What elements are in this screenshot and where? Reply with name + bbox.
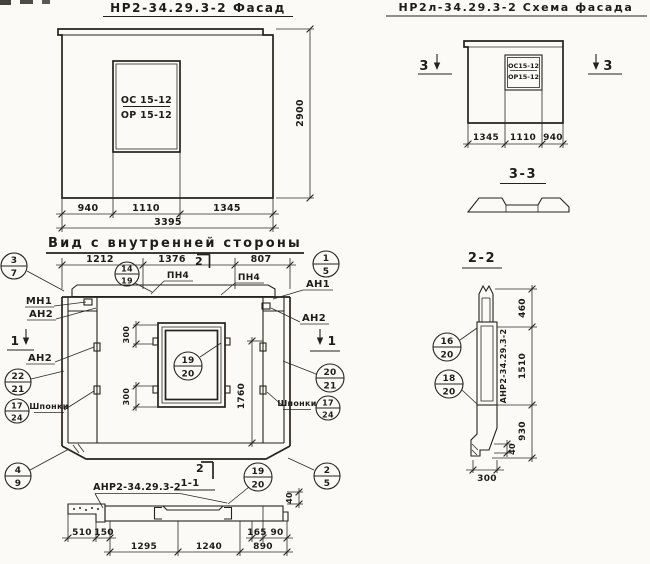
svg-text:20: 20	[440, 351, 453, 361]
label-an2-left-mid: АН2	[26, 347, 94, 364]
dim-300-bottom: 300	[122, 388, 131, 406]
label-an2-right: АН2	[271, 308, 329, 324]
dim-40: 40	[508, 443, 517, 455]
dim-165: 165	[247, 528, 267, 538]
svg-text:20: 20	[181, 370, 194, 380]
svg-text:19: 19	[251, 467, 264, 477]
svg-text:40: 40	[285, 492, 294, 504]
section-3-3-profile	[468, 198, 569, 212]
inner-title: Вид с внутренней стороны	[48, 236, 302, 251]
svg-text:ПН4: ПН4	[167, 271, 189, 281]
dim-1345: 1345	[473, 133, 499, 143]
svg-text:5: 5	[324, 479, 331, 489]
svg-text:2: 2	[324, 466, 331, 476]
svg-text:4: 4	[15, 466, 22, 476]
callout-19-20-bottom: 19 20	[228, 463, 272, 504]
label-pn4-right: ПН4	[221, 273, 264, 295]
facade-window-label-bottom: ОР 15-12	[121, 110, 172, 121]
schema-view: НР2л-34.29.3-2 Схема фасада ОС15-12 ОР15…	[386, 1, 647, 148]
keys-label-left: Шпонки	[29, 402, 68, 411]
dim-1240: 1240	[196, 542, 222, 552]
svg-text:2: 2	[196, 462, 204, 475]
dim-1295: 1295	[131, 542, 157, 552]
schema-window-label-top: ОС15-12	[508, 62, 539, 70]
section1-marker-left: 1	[7, 329, 34, 350]
section-1-1: 510 150 165 90 1295 1240 890	[62, 504, 293, 556]
dim-510: 510	[72, 528, 92, 538]
section2-cut-marker-bottom: 2	[196, 462, 213, 479]
svg-text:24: 24	[322, 411, 334, 420]
dim-807: 807	[251, 254, 272, 265]
svg-text:19: 19	[121, 277, 133, 286]
svg-text:14: 14	[121, 265, 133, 274]
keys-label-right: Шпонки	[277, 399, 316, 408]
svg-text:20: 20	[251, 481, 264, 491]
section-1-1-title: 1-1	[181, 478, 200, 489]
section-2-2-mark-label: АНР2-34.29.3-2	[499, 329, 508, 404]
callout-19-20-center: 19 20	[174, 343, 221, 380]
schema-window-label-bottom: ОР15-12	[508, 73, 539, 81]
svg-text:21: 21	[323, 382, 336, 392]
dim-940: 940	[78, 203, 99, 214]
dim-1212: 1212	[86, 254, 114, 265]
svg-text:21: 21	[11, 385, 24, 395]
section3-marker-right: 3	[588, 54, 622, 74]
svg-text:МН1: МН1	[26, 296, 52, 307]
dim-930: 930	[518, 421, 528, 441]
callout-22-21: 22 21	[5, 369, 64, 395]
dim-40-bottom: 40	[285, 488, 303, 508]
callout-1-5: 1 5	[313, 251, 339, 277]
svg-text:3: 3	[11, 256, 18, 266]
scan-artifact	[0, 0, 50, 5]
svg-text:24: 24	[11, 414, 23, 423]
dim-1760: 1760	[237, 383, 247, 409]
blueprint-sheet: НР2-34.29.3-2 Фасад ОС 15-12 ОР 15-12 94…	[0, 0, 650, 564]
section-1-1-profile	[68, 504, 288, 522]
schema-panel-outline	[464, 41, 563, 123]
svg-text:АН1: АН1	[306, 279, 330, 290]
section-3-3-title: 3-3	[509, 167, 537, 182]
section-1-1-dimensions: 510 150 165 90 1295 1240 890	[62, 514, 293, 556]
dim-890: 890	[253, 542, 273, 552]
label-an1: АН1	[273, 279, 333, 299]
inner-view: Вид с внутренней стороны 1212 1376 807 2	[1, 236, 344, 508]
svg-text:5: 5	[323, 267, 330, 277]
inner-window-dimensions: 300 300 1760	[122, 321, 263, 447]
svg-text:17: 17	[322, 399, 334, 408]
dim-1110: 1110	[132, 203, 160, 214]
callout-17-24-right: 17 24 Шпонки	[267, 392, 340, 420]
svg-text:17: 17	[11, 402, 23, 411]
svg-text:1: 1	[328, 334, 337, 348]
section-2-2: 2-2 16 20 18 20 А	[433, 251, 537, 484]
svg-text:20: 20	[323, 368, 336, 378]
dim-460: 460	[518, 298, 528, 318]
facade-window-label-top: ОС 15-12	[121, 95, 172, 106]
section-2-2-title: 2-2	[468, 251, 496, 266]
dim-300-top: 300	[122, 326, 131, 344]
dim-300: 300	[477, 474, 497, 484]
svg-text:3: 3	[603, 59, 612, 74]
svg-text:АН2: АН2	[302, 313, 326, 324]
schema-title: НР2л-34.29.3-2 Схема фасада	[399, 1, 634, 14]
dim-940: 940	[543, 133, 563, 143]
svg-text:19: 19	[181, 356, 194, 366]
callout-20-21: 20 21	[283, 361, 344, 392]
svg-text:ПН4: ПН4	[238, 273, 260, 283]
schema-dimensions: 1345 1110 940	[463, 90, 568, 148]
dim-150: 150	[94, 528, 114, 538]
inner-panel-outline	[62, 285, 290, 459]
mark-label-anr2: АНР2-34.29.3-2	[93, 482, 227, 508]
callout-16-20: 16 20	[433, 328, 477, 361]
callout-14-19: 14 19	[115, 262, 152, 292]
callout-17-24-left: 17 24 Шпонки	[5, 391, 94, 423]
svg-text:16: 16	[440, 337, 453, 347]
section3-marker-left: 3	[418, 54, 452, 74]
svg-text:1: 1	[323, 254, 330, 264]
svg-text:3: 3	[419, 59, 428, 74]
svg-text:9: 9	[15, 479, 22, 489]
dim-1510: 1510	[518, 353, 528, 379]
dim-3395: 3395	[154, 217, 182, 228]
section-3-3: 3-3	[468, 167, 569, 212]
section1-marker-right: 1	[310, 329, 340, 351]
callout-2-5: 2 5	[288, 458, 340, 489]
dim-1345: 1345	[213, 203, 241, 214]
callout-3-7: 3 7	[1, 253, 64, 291]
svg-text:АНР2-34.29.3-2: АНР2-34.29.3-2	[93, 482, 181, 493]
section-2-2-profile	[471, 286, 497, 456]
callout-18-20: 18 20	[435, 370, 477, 404]
dim-2900: 2900	[295, 99, 306, 127]
dim-1110: 1110	[510, 133, 536, 143]
dim-1376: 1376	[158, 254, 186, 265]
facade-dimensions: 940 1110 1345 3395 2900	[56, 26, 314, 232]
svg-text:20: 20	[442, 388, 455, 398]
dim-90: 90	[270, 528, 283, 538]
section2-cut-marker-top: 2	[195, 255, 210, 269]
svg-text:АН2: АН2	[29, 309, 53, 320]
svg-text:АН2: АН2	[28, 353, 52, 364]
facade-view: НР2-34.29.3-2 Фасад ОС 15-12 ОР 15-12 94…	[56, 1, 314, 232]
svg-text:1: 1	[11, 334, 20, 348]
svg-text:7: 7	[11, 269, 18, 279]
svg-text:2: 2	[195, 255, 203, 268]
callout-4-9: 4 9	[5, 449, 69, 489]
svg-text:18: 18	[442, 374, 455, 384]
facade-title: НР2-34.29.3-2 Фасад	[110, 1, 286, 15]
drawing-canvas: НР2-34.29.3-2 Фасад ОС 15-12 ОР 15-12 94…	[0, 0, 650, 564]
svg-text:22: 22	[11, 372, 24, 382]
label-pn4-left: ПН4	[151, 271, 193, 294]
